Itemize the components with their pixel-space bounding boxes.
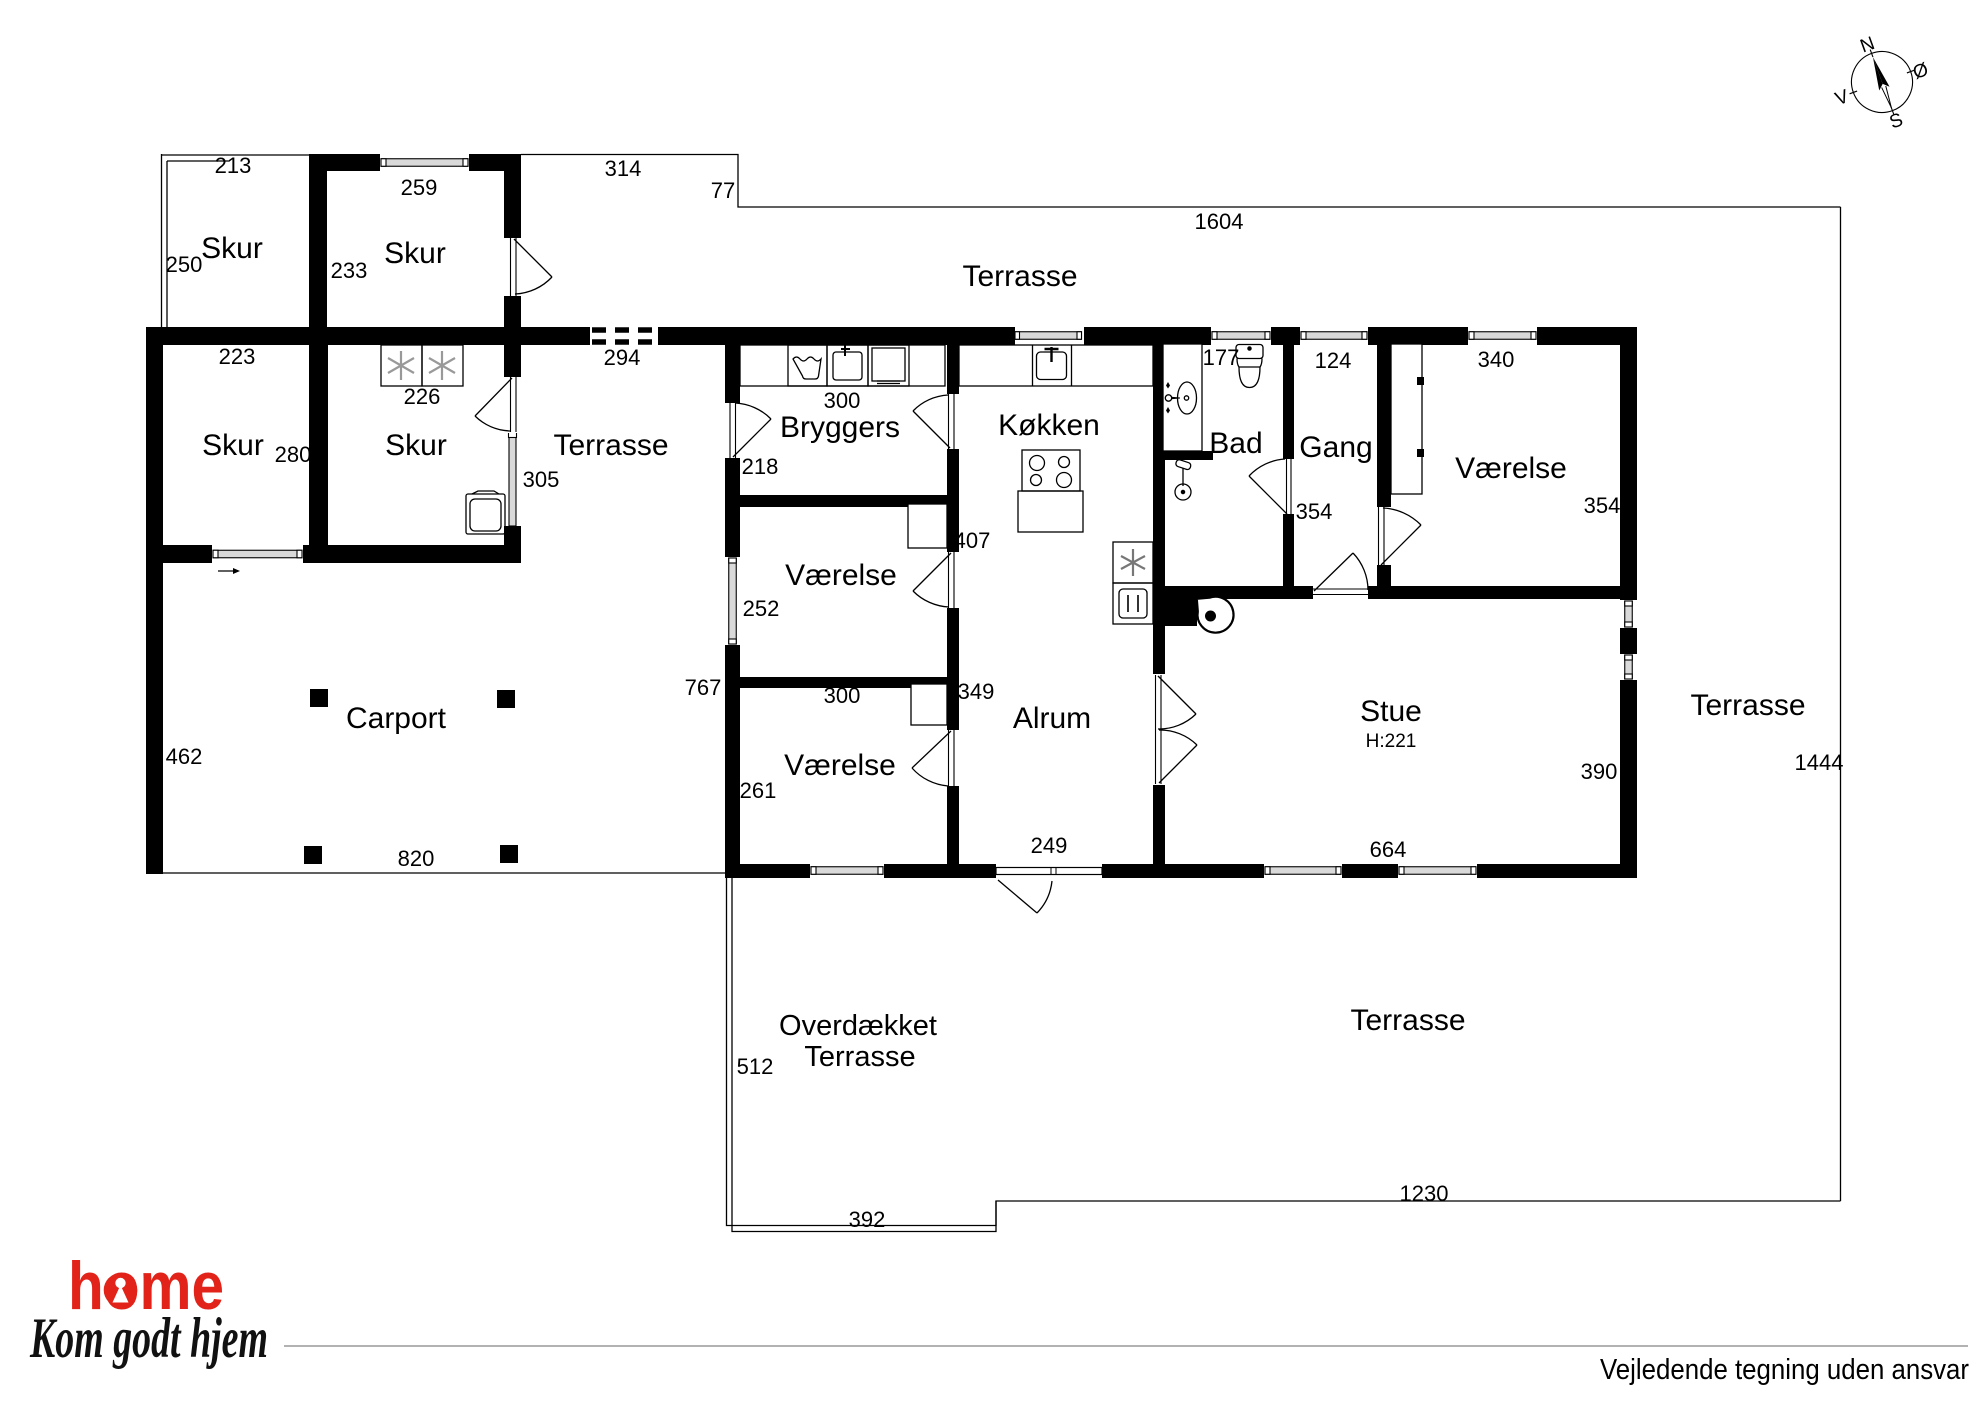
- svg-text:664: 664: [1370, 837, 1407, 862]
- svg-text:S: S: [1887, 109, 1906, 133]
- svg-text:Ø: Ø: [1910, 59, 1931, 84]
- svg-text:300: 300: [824, 683, 861, 708]
- svg-text:N: N: [1858, 33, 1878, 57]
- svg-text:820: 820: [398, 846, 435, 871]
- svg-text:177: 177: [1203, 345, 1240, 370]
- svg-text:512: 512: [737, 1054, 774, 1079]
- svg-text:Overdækket: Overdækket: [779, 1010, 937, 1042]
- svg-text:259: 259: [401, 175, 438, 200]
- svg-text:Carport: Carport: [346, 702, 447, 735]
- svg-text:Terrasse: Terrasse: [804, 1041, 915, 1073]
- svg-text:Kom godt hjem: Kom godt hjem: [29, 1307, 268, 1370]
- svg-text:124: 124: [1315, 348, 1352, 373]
- svg-text:305: 305: [523, 467, 560, 492]
- svg-text:218: 218: [742, 454, 779, 479]
- svg-text:Skur: Skur: [201, 232, 263, 265]
- svg-text:Værelse: Værelse: [785, 559, 897, 592]
- svg-text:249: 249: [1031, 833, 1068, 858]
- svg-text:Alrum: Alrum: [1013, 702, 1091, 735]
- svg-text:233: 233: [331, 258, 368, 283]
- svg-text:407: 407: [954, 528, 991, 553]
- svg-text:223: 223: [219, 344, 256, 369]
- svg-text:H:221: H:221: [1366, 731, 1417, 752]
- svg-text:Skur: Skur: [202, 429, 264, 462]
- svg-text:213: 213: [215, 153, 252, 178]
- svg-text:Gang: Gang: [1299, 431, 1372, 464]
- svg-text:349: 349: [958, 679, 995, 704]
- svg-text:Terrasse: Terrasse: [962, 260, 1077, 293]
- svg-text:Værelse: Værelse: [1455, 452, 1567, 485]
- svg-text:V: V: [1833, 86, 1852, 110]
- svg-text:Vejledende tegning uden ansvar: Vejledende tegning uden ansvar: [1600, 1354, 1969, 1386]
- svg-text:767: 767: [685, 675, 722, 700]
- svg-text:226: 226: [404, 384, 441, 409]
- svg-text:Stue: Stue: [1360, 695, 1422, 728]
- svg-text:462: 462: [166, 744, 203, 769]
- svg-text:1604: 1604: [1195, 209, 1244, 234]
- svg-text:Bad: Bad: [1209, 427, 1262, 460]
- svg-text:354: 354: [1584, 493, 1621, 518]
- svg-text:Værelse: Værelse: [784, 749, 896, 782]
- svg-text:Bryggers: Bryggers: [780, 411, 900, 444]
- svg-text:280: 280: [275, 442, 312, 467]
- svg-text:Køkken: Køkken: [998, 409, 1100, 442]
- svg-text:Skur: Skur: [384, 237, 446, 270]
- svg-text:1230: 1230: [1400, 1181, 1449, 1206]
- svg-text:1444: 1444: [1795, 750, 1844, 775]
- svg-text:390: 390: [1581, 759, 1618, 784]
- svg-text:Skur: Skur: [385, 429, 447, 462]
- svg-text:Terrasse: Terrasse: [1350, 1004, 1465, 1037]
- svg-text:300: 300: [824, 388, 861, 413]
- svg-text:Terrasse: Terrasse: [553, 429, 668, 462]
- svg-text:354: 354: [1296, 499, 1333, 524]
- svg-text:340: 340: [1478, 347, 1515, 372]
- svg-text:294: 294: [604, 345, 641, 370]
- svg-text:392: 392: [849, 1207, 886, 1232]
- svg-text:261: 261: [740, 778, 777, 803]
- svg-text:Terrasse: Terrasse: [1690, 689, 1805, 722]
- svg-text:252: 252: [743, 596, 780, 621]
- svg-text:314: 314: [605, 156, 642, 181]
- svg-text:250: 250: [166, 252, 203, 277]
- svg-text:77: 77: [711, 178, 735, 203]
